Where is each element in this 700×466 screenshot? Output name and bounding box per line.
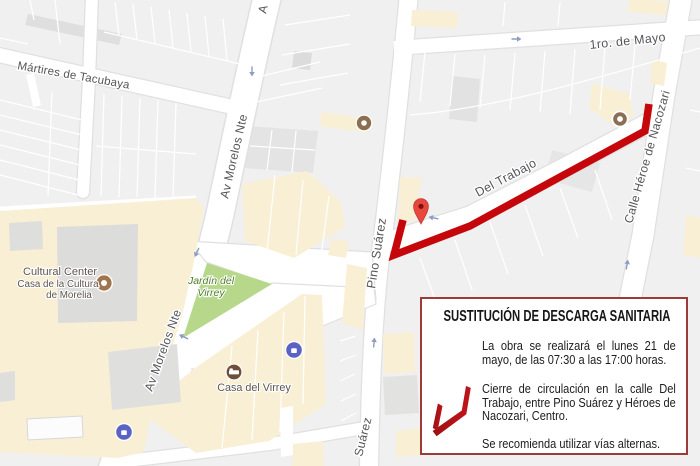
svg-text:Casa del Virrey: Casa del Virrey [217, 382, 291, 394]
svg-text:Casa de la Cultura: Casa de la Cultura [17, 279, 99, 290]
svg-text:Cultural Center: Cultural Center [23, 266, 97, 278]
svg-text:Jardín del: Jardín del [187, 275, 235, 287]
svg-text:de Morelia: de Morelia [46, 290, 92, 301]
svg-text:Virrey: Virrey [197, 287, 225, 299]
